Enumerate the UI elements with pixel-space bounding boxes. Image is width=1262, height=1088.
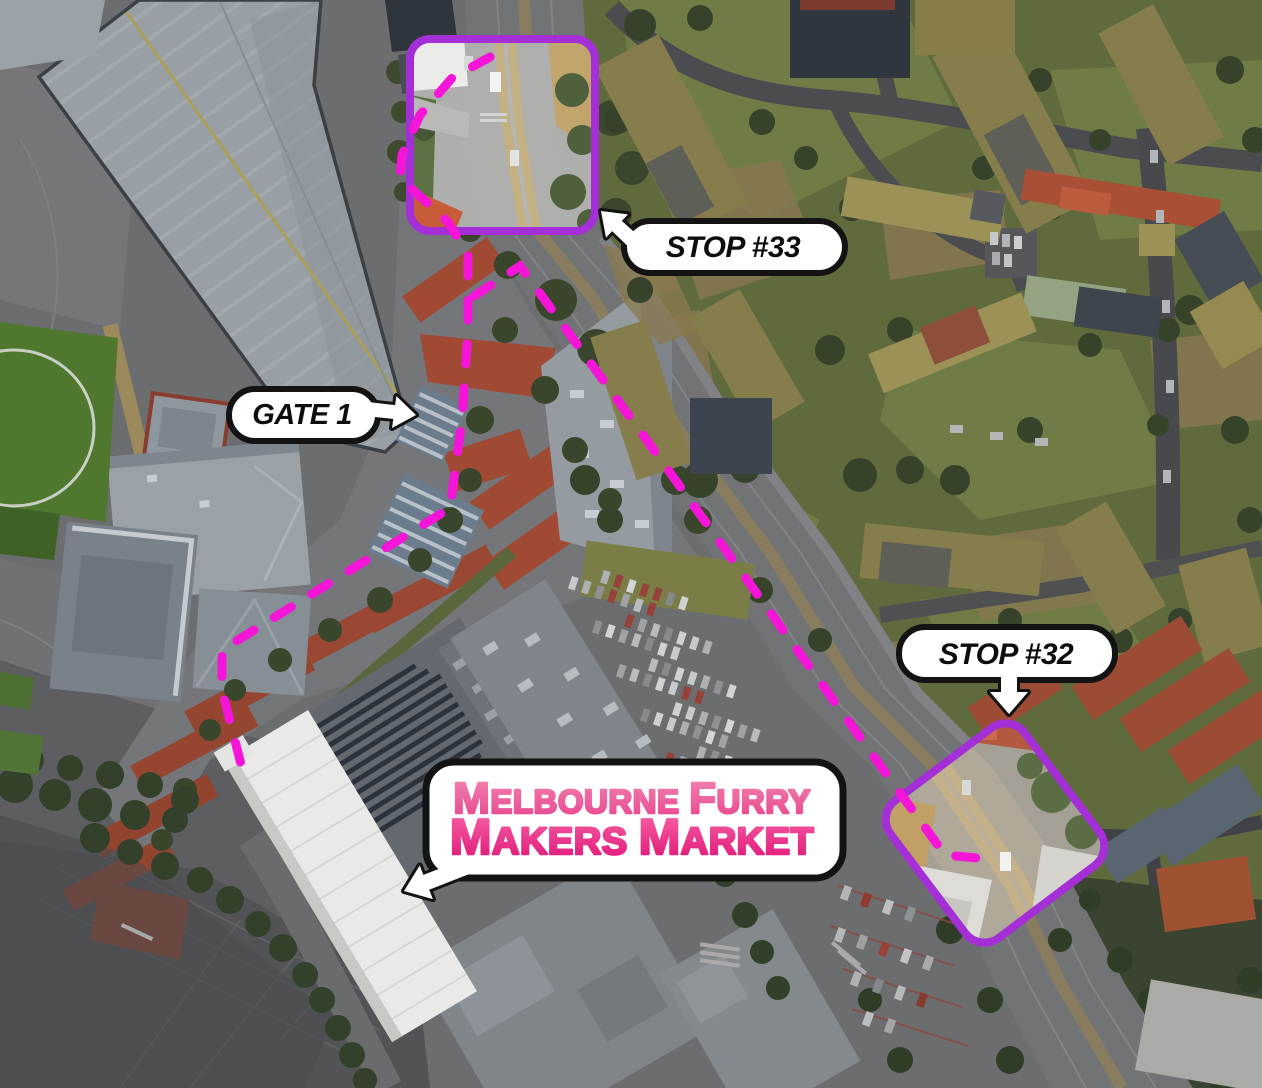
svg-text:GATE 1: GATE 1: [252, 399, 352, 431]
svg-text:STOP #32: STOP #32: [939, 638, 1074, 671]
svg-text:STOP #33: STOP #33: [666, 231, 801, 264]
